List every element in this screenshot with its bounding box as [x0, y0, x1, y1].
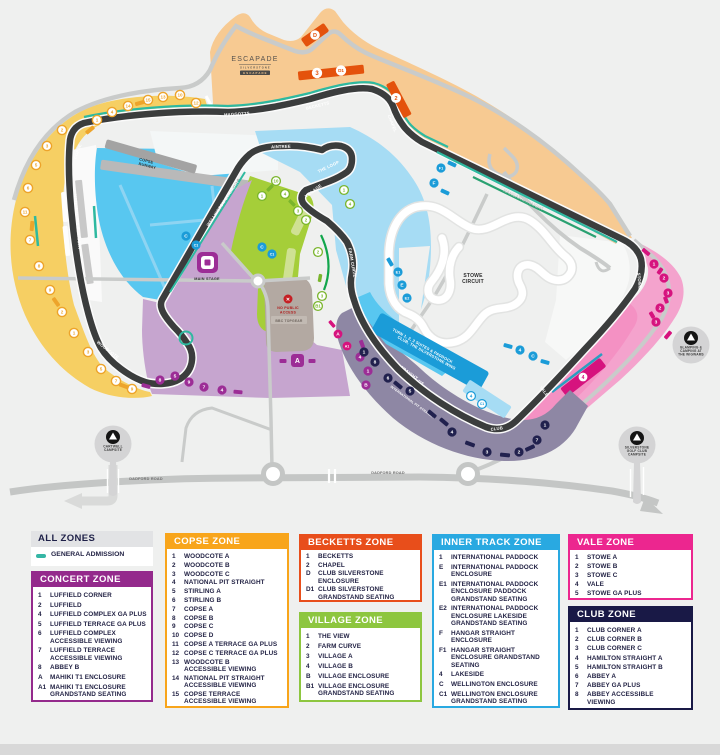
svg-text:9: 9	[188, 380, 191, 386]
svg-text:15: 15	[145, 98, 151, 103]
svg-text:2: 2	[518, 450, 521, 456]
svg-text:1: 1	[96, 118, 99, 123]
svg-text:10: 10	[274, 179, 279, 184]
svg-text:5: 5	[174, 374, 177, 380]
svg-text:5: 5	[35, 163, 38, 168]
svg-text:C1: C1	[194, 243, 199, 247]
svg-text:5: 5	[100, 367, 103, 372]
svg-text:C: C	[260, 245, 264, 251]
svg-text:1: 1	[73, 331, 76, 336]
svg-text:BBC TOPGEAR: BBC TOPGEAR	[275, 319, 303, 323]
svg-text:2: 2	[663, 276, 666, 282]
svg-text:NO PUBLIC: NO PUBLIC	[277, 306, 299, 310]
svg-text:DADFORD ROAD: DADFORD ROAD	[129, 477, 163, 481]
svg-text:8: 8	[374, 360, 377, 366]
svg-text:CAMPSITE: CAMPSITE	[628, 453, 646, 457]
svg-text:C: C	[184, 234, 188, 240]
svg-text:3: 3	[667, 291, 670, 297]
svg-text:C: C	[531, 354, 535, 360]
svg-text:2: 2	[61, 128, 64, 133]
svg-text:5: 5	[409, 389, 412, 395]
svg-text:8: 8	[159, 378, 162, 384]
svg-text:12: 12	[193, 101, 199, 106]
svg-text:DADFORD ROAD: DADFORD ROAD	[371, 471, 405, 475]
svg-text:E S C A P A D E: E S C A P A D E	[243, 71, 267, 75]
svg-text:3: 3	[87, 350, 90, 355]
svg-text:E1: E1	[396, 270, 401, 274]
svg-text:CAMPSITE: CAMPSITE	[104, 448, 122, 452]
svg-text:8: 8	[38, 264, 41, 269]
svg-text:✕: ✕	[286, 297, 290, 303]
svg-text:F: F	[433, 181, 436, 187]
svg-text:10: 10	[177, 93, 183, 98]
svg-text:9: 9	[49, 288, 52, 293]
svg-text:2: 2	[61, 310, 64, 315]
svg-text:B1: B1	[315, 304, 321, 309]
svg-text:7: 7	[29, 238, 32, 243]
svg-text:2: 2	[394, 96, 397, 102]
svg-text:C1: C1	[270, 252, 275, 256]
svg-text:2: 2	[659, 306, 662, 312]
svg-text:AINTREE: AINTREE	[271, 144, 291, 150]
svg-text:7: 7	[115, 379, 118, 384]
svg-text:4: 4	[221, 388, 224, 394]
svg-text:4: 4	[582, 375, 585, 381]
svg-text:7: 7	[203, 385, 206, 391]
svg-text:ACCESS: ACCESS	[280, 311, 297, 315]
svg-text:3: 3	[486, 450, 489, 456]
svg-text:6: 6	[27, 186, 30, 191]
svg-text:6: 6	[387, 376, 390, 382]
svg-text:3: 3	[655, 320, 658, 326]
svg-text:F1: F1	[439, 166, 443, 170]
svg-text:1: 1	[544, 423, 547, 429]
svg-text:ESCAPADE: ESCAPADE	[231, 56, 278, 63]
svg-text:1: 1	[653, 262, 656, 268]
svg-text:4: 4	[519, 348, 522, 354]
svg-text:THE WIGWAMS: THE WIGWAMS	[678, 353, 704, 357]
svg-text:13: 13	[160, 95, 166, 100]
svg-text:11: 11	[23, 210, 28, 215]
svg-text:9: 9	[131, 387, 134, 392]
svg-text:C1: C1	[480, 402, 484, 406]
svg-text:E2: E2	[405, 296, 410, 300]
svg-text:14: 14	[125, 104, 131, 109]
svg-text:3: 3	[46, 144, 49, 149]
svg-text:A1: A1	[345, 344, 350, 348]
svg-text:1: 1	[363, 350, 366, 356]
svg-text:4: 4	[111, 110, 114, 115]
svg-text:D1: D1	[338, 68, 344, 73]
svg-text:4: 4	[470, 394, 473, 399]
svg-text:MAIN STAGE: MAIN STAGE	[194, 277, 220, 281]
svg-text:4: 4	[451, 430, 454, 436]
svg-text:D: D	[313, 33, 317, 39]
svg-text:7: 7	[536, 438, 539, 444]
svg-text:A: A	[336, 332, 340, 338]
svg-text:CIRCUIT: CIRCUIT	[462, 279, 484, 285]
svg-text:B: B	[364, 383, 368, 389]
svg-text:A: A	[295, 358, 300, 365]
svg-text:1: 1	[367, 369, 370, 375]
svg-text:S I L V E R S T O N E: S I L V E R S T O N E	[240, 66, 270, 70]
